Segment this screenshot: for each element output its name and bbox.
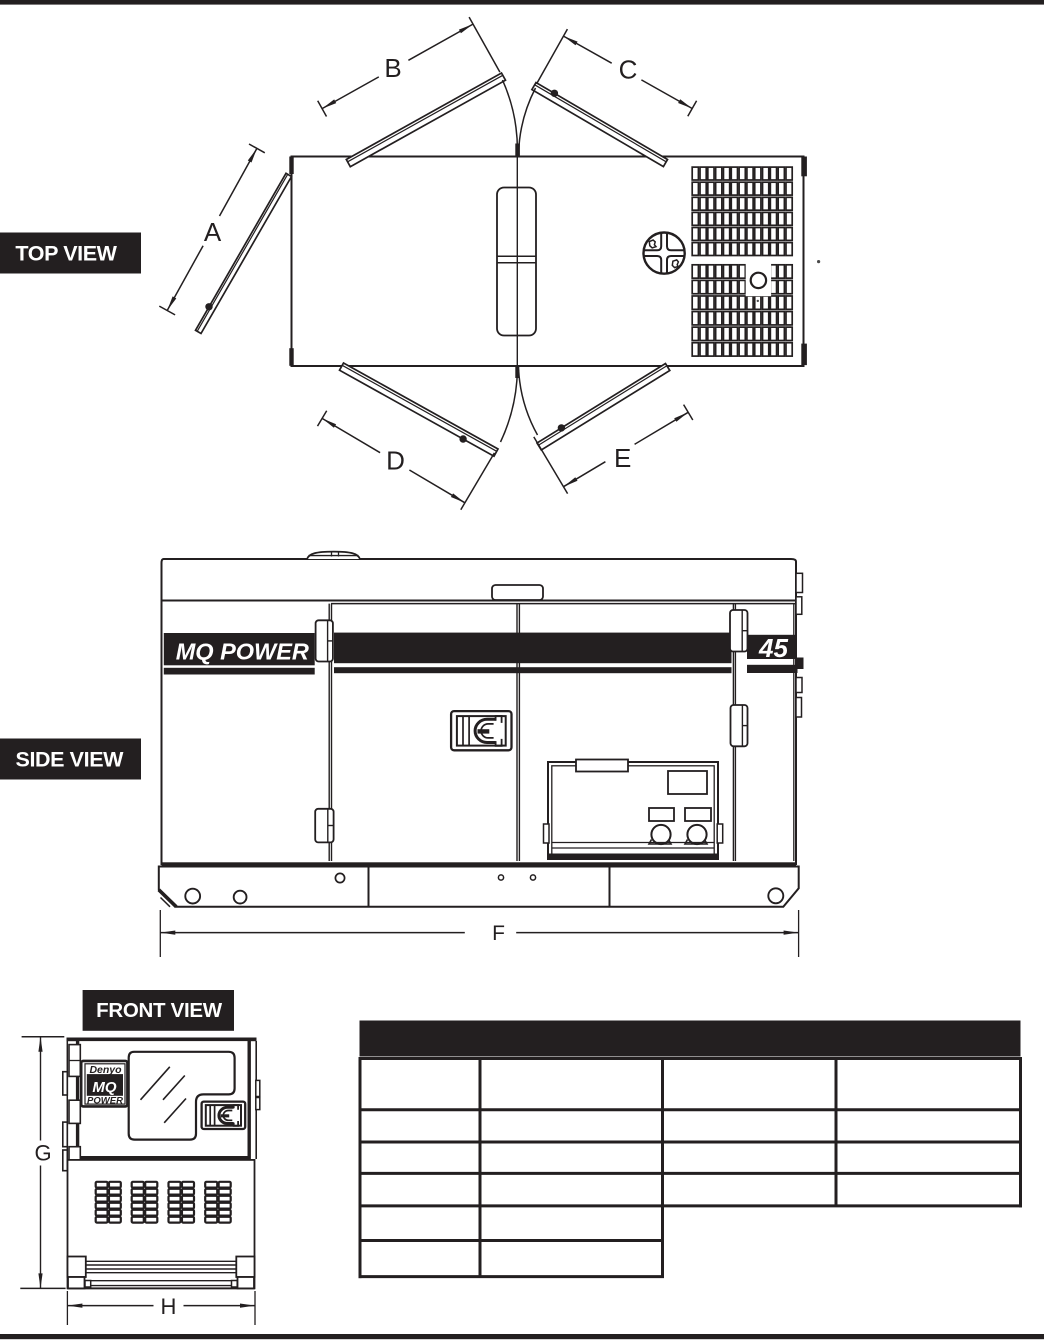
svg-text:E: E: [614, 443, 631, 473]
svg-text:B: B: [384, 53, 401, 83]
svg-text:POWER: POWER: [87, 1095, 123, 1106]
svg-text:H: H: [160, 1294, 176, 1319]
svg-text:TOP VIEW: TOP VIEW: [15, 242, 117, 266]
svg-text:G: G: [34, 1141, 51, 1166]
svg-text:FRONT VIEW: FRONT VIEW: [96, 999, 223, 1022]
svg-text:45: 45: [758, 633, 788, 663]
svg-text:F: F: [492, 922, 505, 945]
svg-text:MQ POWER: MQ POWER: [176, 639, 309, 665]
svg-text:SIDE VIEW: SIDE VIEW: [16, 748, 125, 772]
svg-text:A: A: [204, 217, 222, 247]
svg-text:MQ: MQ: [92, 1079, 116, 1096]
svg-text:C: C: [619, 55, 638, 85]
svg-text:Denyo: Denyo: [89, 1064, 122, 1076]
svg-text:D: D: [386, 446, 405, 476]
